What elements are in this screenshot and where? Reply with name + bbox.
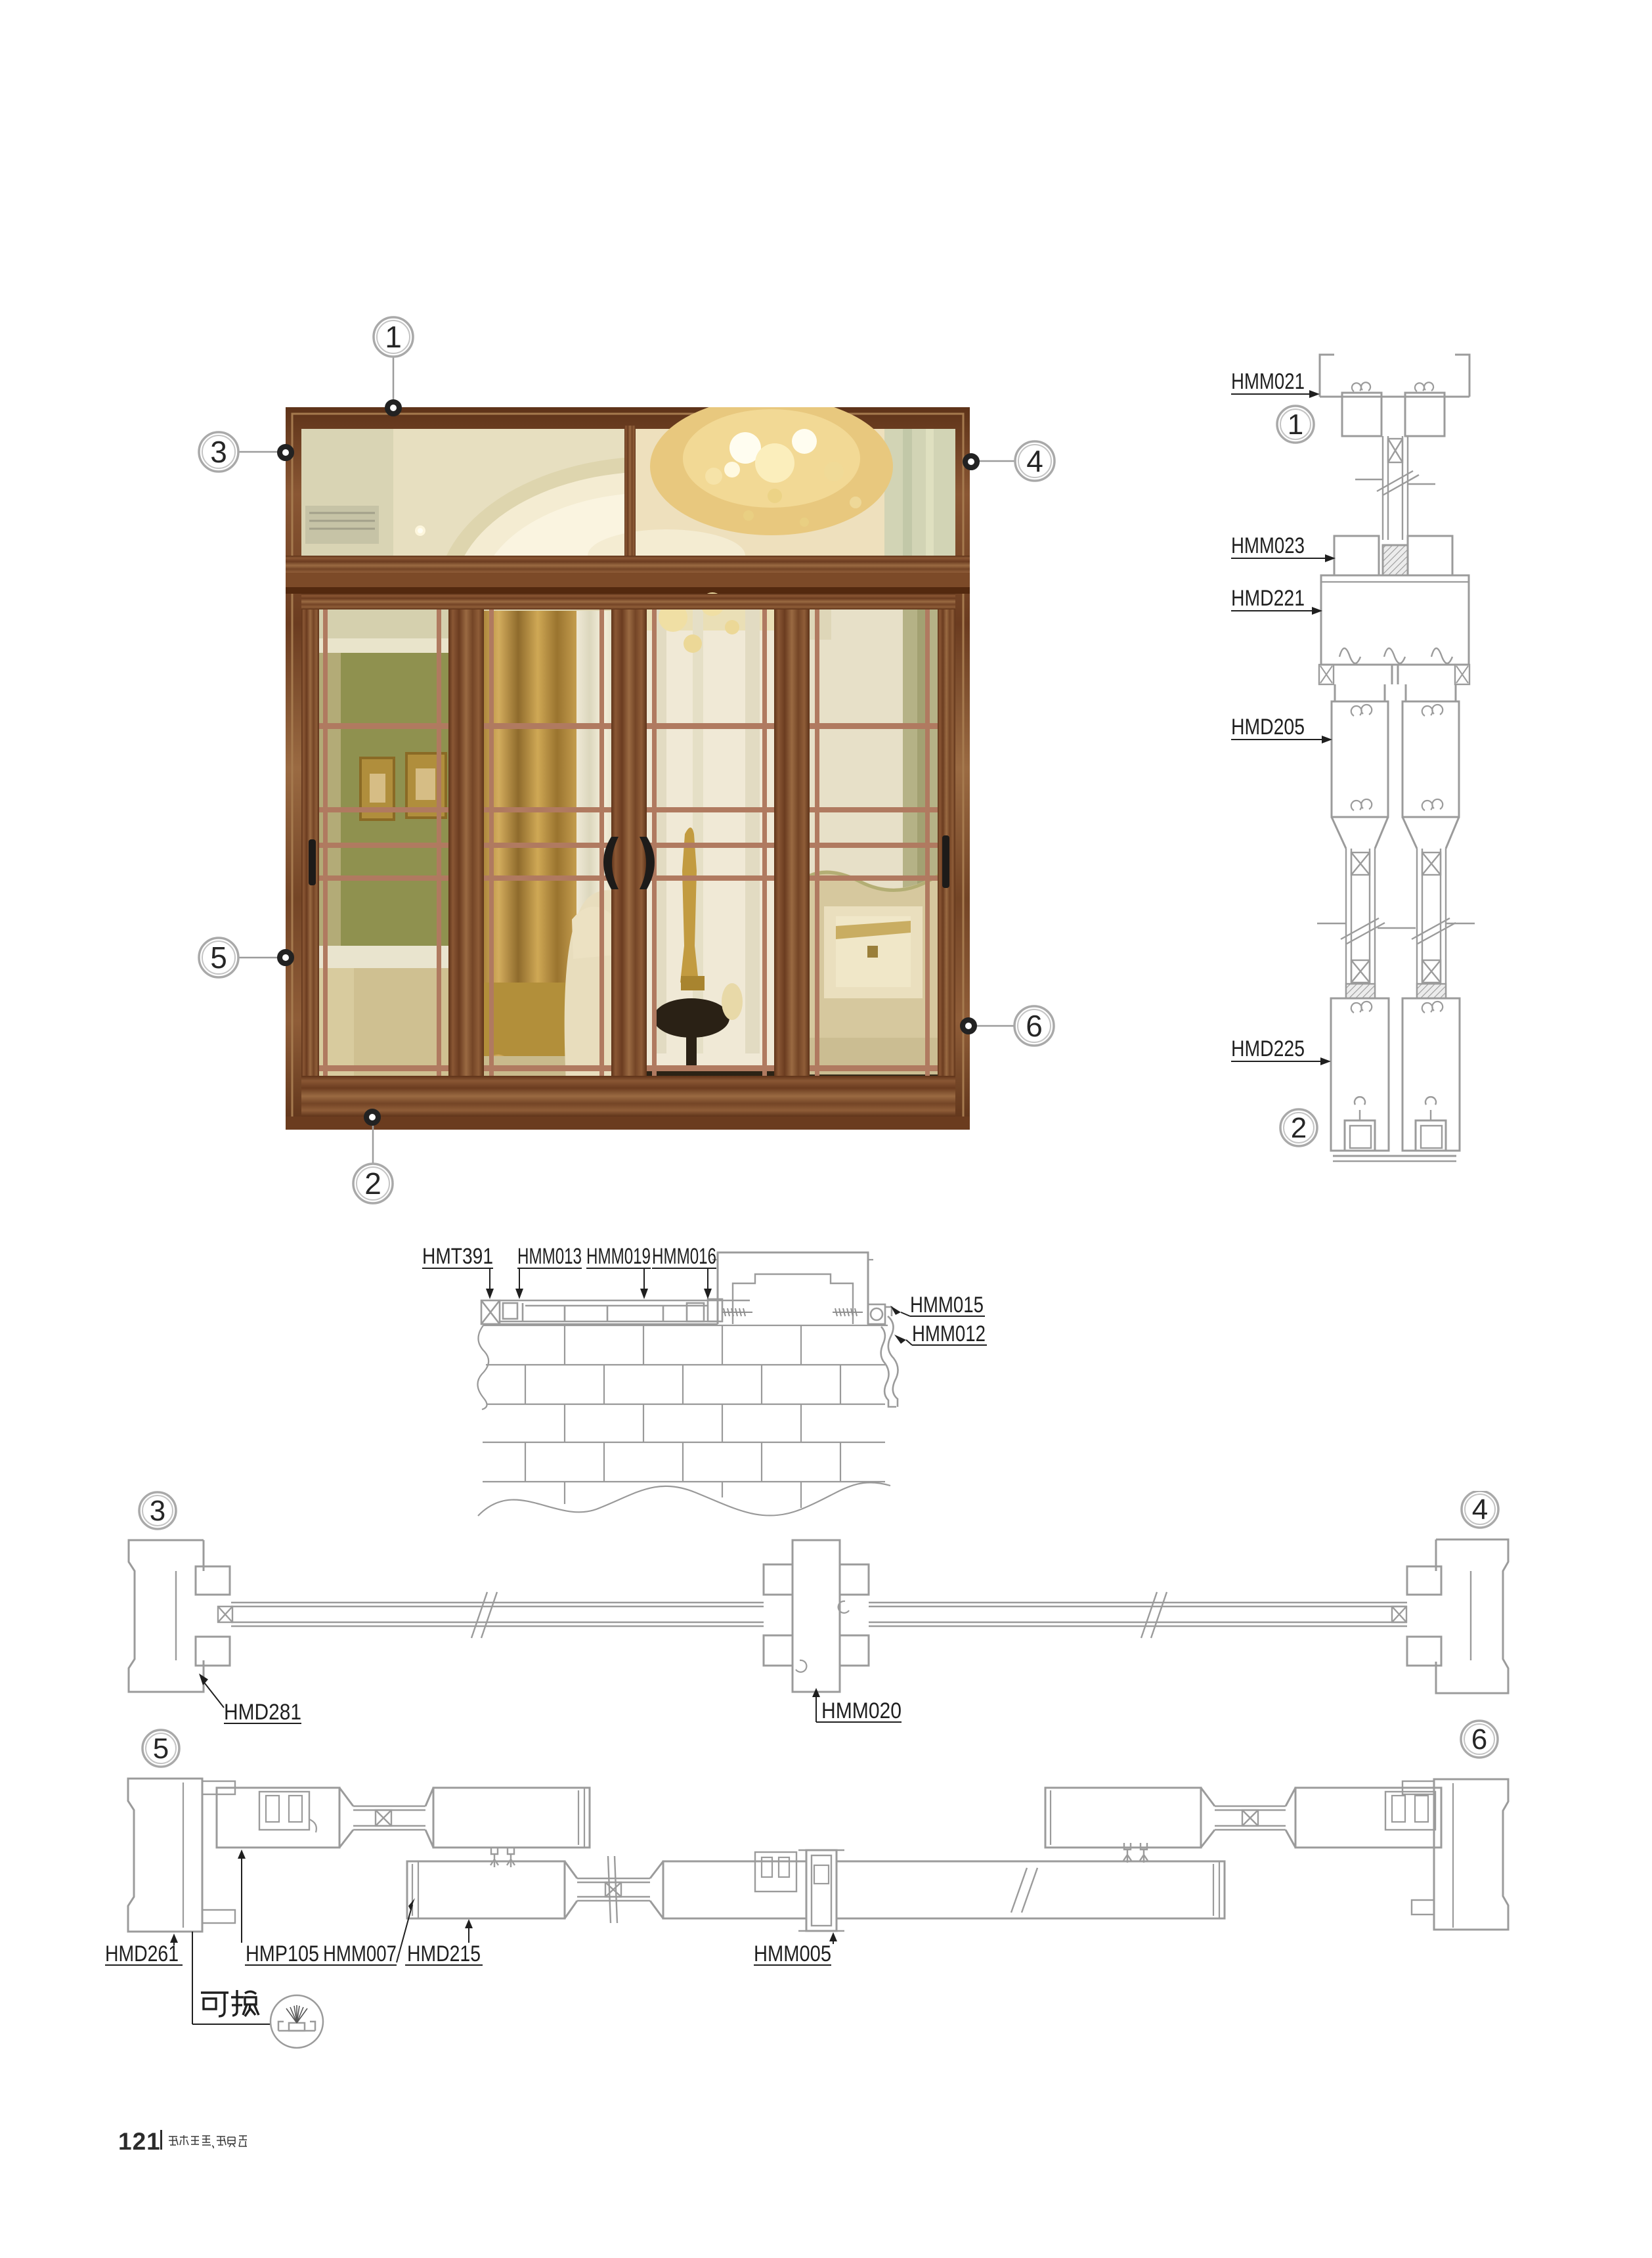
svg-text:HMT391: HMT391 xyxy=(422,1244,493,1269)
svg-text:1: 1 xyxy=(1288,409,1303,441)
svg-text:HMD281: HMD281 xyxy=(224,1700,301,1725)
svg-text:2: 2 xyxy=(1291,1112,1307,1144)
svg-text:HMM020: HMM020 xyxy=(821,1698,902,1723)
svg-text:HMM012: HMM012 xyxy=(912,1321,986,1346)
svg-text:HMP105: HMP105 xyxy=(246,1941,319,1966)
svg-text:2: 2 xyxy=(364,1166,381,1201)
svg-text:6: 6 xyxy=(1471,1723,1487,1756)
svg-text:HMM021: HMM021 xyxy=(1231,369,1305,394)
svg-text:HMM005: HMM005 xyxy=(754,1941,831,1966)
svg-text:1: 1 xyxy=(385,320,402,354)
svg-text:HMD225: HMD225 xyxy=(1231,1036,1305,1061)
svg-text:HMD221: HMD221 xyxy=(1231,586,1305,611)
svg-text:4: 4 xyxy=(1472,1494,1488,1526)
svg-text:3: 3 xyxy=(150,1495,165,1527)
svg-text:HMD205: HMD205 xyxy=(1231,715,1305,740)
svg-text:HMM007: HMM007 xyxy=(323,1941,397,1966)
svg-text:HMM023: HMM023 xyxy=(1231,533,1305,558)
svg-text:HMD215: HMD215 xyxy=(407,1941,481,1966)
svg-text:5: 5 xyxy=(153,1733,169,1765)
svg-text:5: 5 xyxy=(210,941,227,975)
svg-text:HMD261: HMD261 xyxy=(105,1941,179,1966)
svg-text:HMM016: HMM016 xyxy=(652,1244,716,1269)
svg-text:HMM015: HMM015 xyxy=(910,1293,984,1317)
svg-text:3: 3 xyxy=(210,435,227,469)
svg-text:HMM019: HMM019 xyxy=(586,1244,651,1269)
svg-text:4: 4 xyxy=(1026,444,1043,478)
svg-text:HMM013: HMM013 xyxy=(517,1244,582,1269)
svg-text:6: 6 xyxy=(1026,1009,1043,1043)
